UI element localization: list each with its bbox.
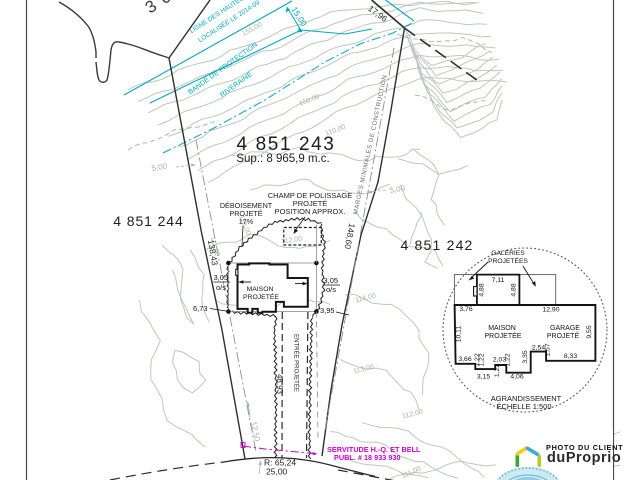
svg-text:ENTRÉE PROJETÉE: ENTRÉE PROJETÉE [293, 334, 300, 392]
svg-text:ÉCHELLE 1:500: ÉCHELLE 1:500 [496, 402, 551, 411]
svg-text:4 851 244: 4 851 244 [113, 213, 183, 229]
svg-text:PROJETÉ: PROJETÉ [547, 331, 580, 340]
svg-text:POSITION APPROX.: POSITION APPROX. [275, 207, 346, 216]
svg-text:3,95: 3,95 [320, 306, 335, 315]
svg-text:1,22: 1,22 [505, 353, 512, 366]
svg-text:GALERIES: GALERIES [491, 250, 525, 257]
svg-text:4 851 243: 4 851 243 [237, 134, 336, 155]
svg-text:Sup.: 8 965,9 m.c.: Sup.: 8 965,9 m.c. [236, 153, 329, 165]
svg-text:MAISON: MAISON [247, 286, 274, 293]
svg-text:PROJETÉE: PROJETÉE [485, 331, 522, 340]
svg-text:3,76: 3,76 [459, 306, 472, 313]
svg-text:4,06: 4,06 [510, 374, 523, 381]
svg-text:1,22: 1,22 [479, 353, 486, 366]
svg-text:25,00: 25,00 [266, 467, 288, 477]
svg-text:PUBL. # 18 933 930: PUBL. # 18 933 930 [334, 453, 401, 462]
svg-text:2,54: 2,54 [532, 345, 545, 352]
svg-text:3,15: 3,15 [477, 374, 490, 381]
svg-text:3,66: 3,66 [458, 356, 471, 363]
svg-text:o/s: o/s [216, 283, 226, 292]
svg-text:8,33: 8,33 [564, 353, 577, 360]
svg-text:3,05: 3,05 [214, 273, 229, 282]
svg-text:10,11: 10,11 [456, 326, 463, 343]
svg-text:7,11: 7,11 [492, 277, 505, 284]
svg-text:PROJETÉE: PROJETÉE [243, 292, 279, 301]
svg-text:9,55: 9,55 [586, 325, 593, 338]
svg-text:MAISON: MAISON [488, 325, 516, 332]
svg-text:3,35: 3,35 [522, 350, 529, 363]
svg-text:48,93: 48,93 [275, 374, 284, 395]
svg-text:4,88: 4,88 [511, 283, 518, 296]
svg-text:duProprio: duProprio [547, 450, 621, 466]
svg-text:1,22: 1,22 [494, 364, 501, 377]
svg-text:GARAGE: GARAGE [550, 325, 580, 332]
svg-text:17%: 17% [239, 217, 254, 226]
svg-text:4,88: 4,88 [479, 283, 486, 296]
svg-text:PROJETÉES: PROJETÉES [488, 256, 528, 265]
svg-text:4 851 242: 4 851 242 [400, 237, 473, 253]
svg-text:1,57: 1,57 [545, 343, 552, 356]
svg-text:12,90: 12,90 [542, 307, 559, 314]
svg-text:o/s: o/s [326, 285, 336, 294]
svg-text:6,73: 6,73 [193, 304, 208, 313]
svg-text:3,05: 3,05 [324, 276, 339, 285]
